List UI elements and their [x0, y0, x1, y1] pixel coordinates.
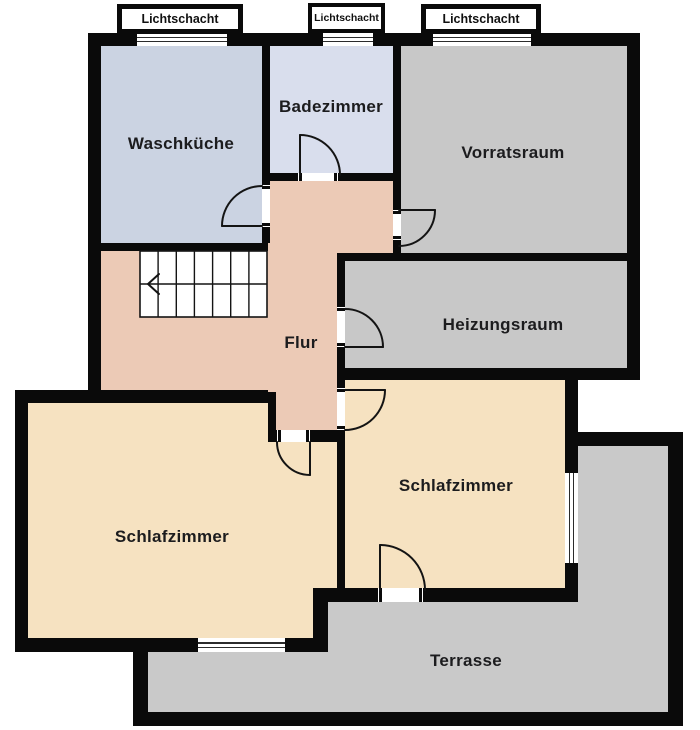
door-arc [380, 545, 425, 590]
light-shaft-label: Lichtschacht [141, 12, 218, 26]
floor-plan: Waschküche Badezimmer Vorratsraum Heizun… [0, 0, 700, 730]
light-shaft-left: Lichtschacht [117, 4, 243, 34]
room-label-vorratsraum: Vorratsraum [461, 143, 564, 163]
room-label-schlafzimmer-links: Schlafzimmer [115, 527, 229, 547]
room-label-waschkueche: Waschküche [128, 134, 234, 154]
door-badezimmer [300, 135, 340, 175]
light-shaft-middle: Lichtschacht [308, 3, 385, 33]
door-waschkueche [222, 186, 262, 226]
room-label-badezimmer: Badezimmer [279, 97, 383, 117]
door-arc [222, 186, 262, 226]
light-shaft-right: Lichtschacht [421, 4, 541, 34]
door-schlafzimmer-links [277, 442, 310, 475]
light-shaft-label: Lichtschacht [442, 12, 519, 26]
light-shaft-label: Lichtschacht [314, 12, 379, 24]
door-schlafzimmer-rechts [345, 390, 385, 430]
door-arc [277, 442, 310, 475]
door-arc [345, 390, 385, 430]
door-arc [345, 309, 383, 347]
door-arc [300, 135, 340, 175]
door-heizungsraum [345, 309, 383, 347]
door-vorratsraum [399, 210, 435, 246]
room-label-flur: Flur [284, 333, 317, 353]
room-label-heizungsraum: Heizungsraum [443, 315, 564, 335]
door-arc [399, 210, 435, 246]
door-terrasse [380, 545, 425, 590]
room-label-terrasse: Terrasse [430, 651, 502, 671]
room-label-schlafzimmer-rechts: Schlafzimmer [399, 476, 513, 496]
